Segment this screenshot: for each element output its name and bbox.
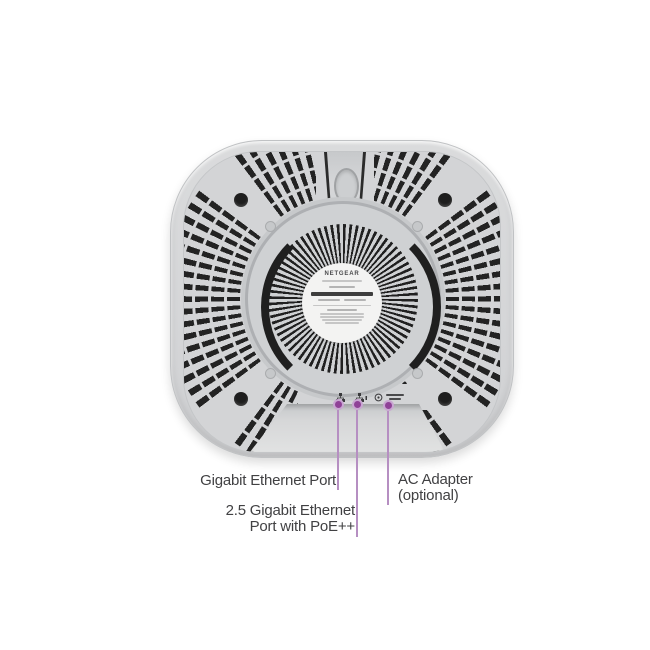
product-label: NETGEAR xyxy=(302,263,382,343)
dc-power-icon xyxy=(374,393,383,402)
label-col-line xyxy=(318,299,340,301)
label-col-line xyxy=(344,299,366,301)
label-text-line xyxy=(327,309,357,311)
callout-text: Gigabit Ethernet Port xyxy=(200,472,336,489)
bracket-recess-oval xyxy=(334,168,359,204)
callout-line-ac xyxy=(387,411,389,505)
rubber-foot xyxy=(234,392,248,406)
callout-line-poe xyxy=(356,410,358,537)
callout-dot-ac xyxy=(385,402,392,409)
access-point-device: NETGEAR xyxy=(170,140,514,458)
product-illustration: NETGEAR xyxy=(0,0,650,650)
label-text-line xyxy=(329,286,355,288)
platform-screw xyxy=(265,221,276,232)
netgear-logo: NETGEAR xyxy=(325,271,360,278)
platform-screw xyxy=(412,368,423,379)
callout-text: 2.5 Gigabit Ethernet xyxy=(226,502,355,519)
rubber-foot xyxy=(438,392,452,406)
callout-text: AC Adapter xyxy=(398,471,473,488)
label-tagline-line xyxy=(322,280,362,282)
label-fine-print xyxy=(320,313,364,324)
label-rule xyxy=(313,305,371,306)
platform-screw xyxy=(412,221,423,232)
callout-text: (optional) xyxy=(398,487,459,504)
label-barcode-bar xyxy=(311,292,373,296)
callout-label-poe: 2.5 Gigabit Ethernet Port with PoE++ xyxy=(226,503,355,534)
power-rating-marks xyxy=(386,394,404,400)
callout-dot-poe xyxy=(354,401,361,408)
platform-screw xyxy=(265,368,276,379)
rubber-foot xyxy=(438,193,452,207)
callout-label-ac: AC Adapter (optional) xyxy=(398,472,473,503)
device-face: NETGEAR xyxy=(183,151,501,453)
rubber-foot xyxy=(234,193,248,207)
callout-text: Port with PoE++ xyxy=(250,518,355,535)
callout-label-gigabit: Gigabit Ethernet Port xyxy=(200,473,336,489)
callout-line-gigabit xyxy=(337,410,339,490)
callout-dot-gigabit xyxy=(335,401,342,408)
